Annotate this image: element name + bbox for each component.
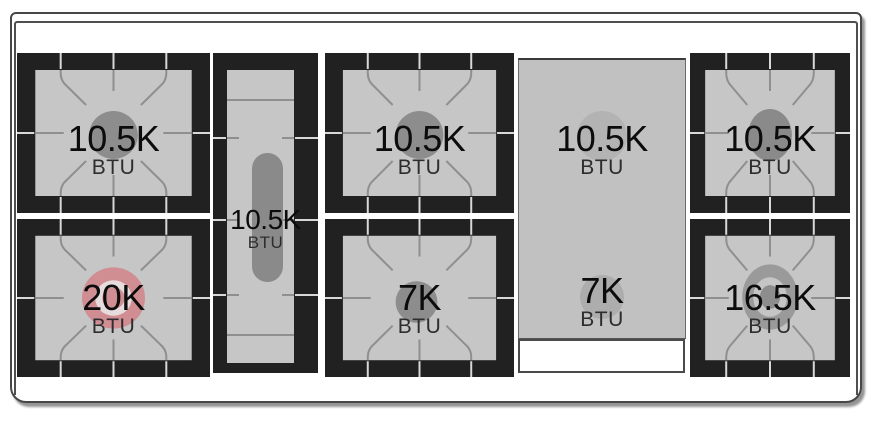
burner-grate-icon [690,219,850,377]
burner-grate-icon [213,53,318,373]
burner-top-left[interactable]: 10.5K BTU [17,53,210,213]
burner-grate-icon [325,53,514,213]
burner-bottom-left[interactable]: 20K BTU [17,219,210,377]
griddle-drip-tray [518,339,685,373]
burner-cap-icon [396,111,444,159]
burner-bottom-right[interactable]: 16.5K BTU [690,219,850,377]
burner-center-oval[interactable]: 10.5K BTU [213,53,318,373]
burner-grate-icon [690,53,850,213]
burner-grate-icon [325,219,514,377]
burner-cap-icon [89,111,138,159]
oval-burner-cap-icon [252,153,283,282]
burner-grate-icon [17,53,210,213]
griddle-burner-cap-icon [580,275,624,319]
burner-bottom-middle[interactable]: 7K BTU [325,219,514,377]
burner-top-right[interactable]: 10.5K BTU [690,53,850,213]
burner-cap-icon [396,281,438,322]
griddle-burner-cap-icon [577,111,627,161]
burner-grate-icon [17,219,210,377]
griddle-plate[interactable]: 10.5K BTU 7K BTU [518,58,686,339]
burner-top-middle[interactable]: 10.5K BTU [325,53,514,213]
cooktop-diagram: 10.5K BTU 20K BTU [0,0,872,424]
burner-cap-icon [748,109,792,161]
